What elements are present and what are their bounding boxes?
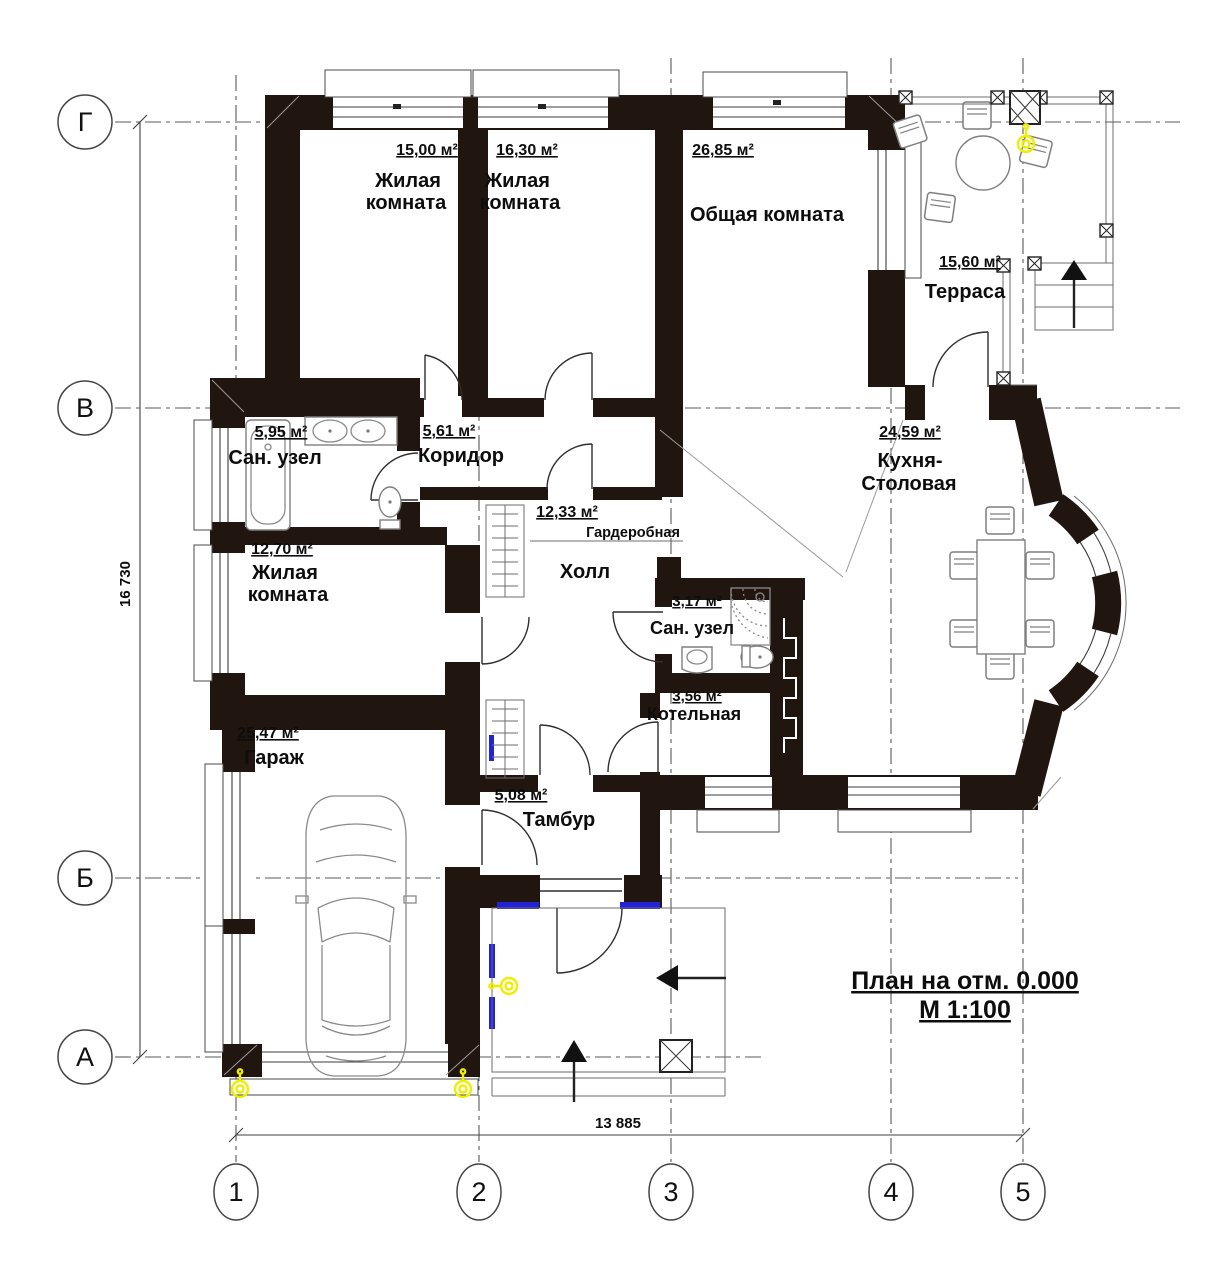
chair-icon [986,652,1014,679]
room-area-corridor: 5,61 м² [423,423,476,440]
dimension-horizontal: 13 885 [229,1115,1030,1142]
room-name-hall: Холл [560,561,610,583]
chair-icon [1026,620,1054,647]
double-sink-icon [305,417,397,445]
chair-icon [924,192,955,223]
room-name-terrace: Терраса [925,281,1006,303]
axis-row-label: В [76,393,94,423]
chair-icon [986,507,1014,534]
axis-row-label: Г [78,107,93,137]
room-area-garage: 25,47 м² [237,725,299,742]
column-icon [660,1040,692,1072]
entry-arrow-left-icon [656,965,678,991]
drawing-scale: М 1:100 [919,996,1011,1024]
chair-icon [963,102,991,129]
axis-col-label: 4 [883,1177,898,1207]
post-icon [1028,257,1041,270]
room-name-kitchen: Кухня- [877,450,942,472]
terrace-stairs [1035,260,1113,330]
room-area-kitchen: 24,59 м² [879,424,941,441]
dimension-value: 13 885 [595,1115,641,1132]
column-icon [1010,91,1040,124]
room-name-common: Общая комната [690,204,845,226]
room-name-boiler: Котельная [647,704,741,724]
interior-details [212,96,1061,1075]
room-area-common: 26,85 м² [692,142,754,159]
post-icon [991,91,1004,104]
axis-row-label: Б [76,863,94,893]
room-name-living1: комната [366,192,447,214]
room-area-living3: 12,70 м² [251,541,313,558]
floor-plan-drawing: Г В Б А 1 2 3 4 5 16 730 13 885 15,00 м²… [0,0,1208,1274]
lamp-icon [489,978,517,994]
drawing-title: План на отм. 0.000 [851,967,1079,995]
post-icon [1100,224,1113,237]
post-icon [1100,91,1113,104]
terrace-structure [899,91,1113,385]
axis-col-label: 3 [663,1177,678,1207]
room-name-bath1: Сан. узел [228,447,321,469]
furniture [246,102,1054,1076]
toilet-icon [379,487,401,529]
room-area-terrace: 15,60 м² [939,254,1001,271]
axis-row-label: А [76,1042,94,1072]
toilet-icon [741,646,773,668]
axis-col-label: 5 [1015,1177,1030,1207]
room-name-corridor: Коридор [418,445,504,467]
entrance-porch [492,908,726,1102]
room-name-kitchen: Столовая [861,473,956,495]
walls [210,95,1108,1077]
axis-col-label: 2 [471,1177,486,1207]
car-icon [296,796,416,1076]
chair-icon [1026,552,1054,579]
floor-plan-canvas: Г В Б А 1 2 3 4 5 16 730 13 885 15,00 м²… [0,0,1208,1274]
room-name-living1: Жилая [374,170,441,192]
chair-icon [950,552,978,579]
room-area-living1: 15,00 м² [396,142,458,159]
post-icon [899,91,912,104]
dimension-vertical: 16 730 [117,115,147,1064]
room-area-tambour: 5,08 м² [495,787,548,804]
room-area-hall: 12,33 м² [536,504,598,521]
room-name-tambour: Тамбур [523,809,596,831]
dimension-value: 16 730 [117,561,134,607]
room-name-living2: Жилая [483,170,550,192]
chair-icon [950,620,978,647]
dining-table-icon [950,507,1054,679]
room-area-boiler: 3,56 м² [672,688,721,705]
room-area-living2: 16,30 м² [496,142,558,159]
post-icon [997,372,1010,385]
room-name-living3: Жилая [251,562,318,584]
room-area-bath2: 3,17 м² [672,593,721,610]
room-name-bath2: Сан. узел [650,618,734,638]
axis-col-label: 1 [228,1177,243,1207]
entry-arrow-up-icon [561,1040,587,1062]
title-block: План на отм. 0.000 М 1:100 [851,967,1079,1024]
room-name-living3: комната [248,584,329,606]
room-name-garage: Гараж [244,747,305,769]
room-name-living2: комната [480,192,561,214]
washbasin-icon [682,647,712,673]
room-area-bath1: 5,95 м² [255,424,308,441]
room-name-closet: Гардеробная [586,525,680,541]
